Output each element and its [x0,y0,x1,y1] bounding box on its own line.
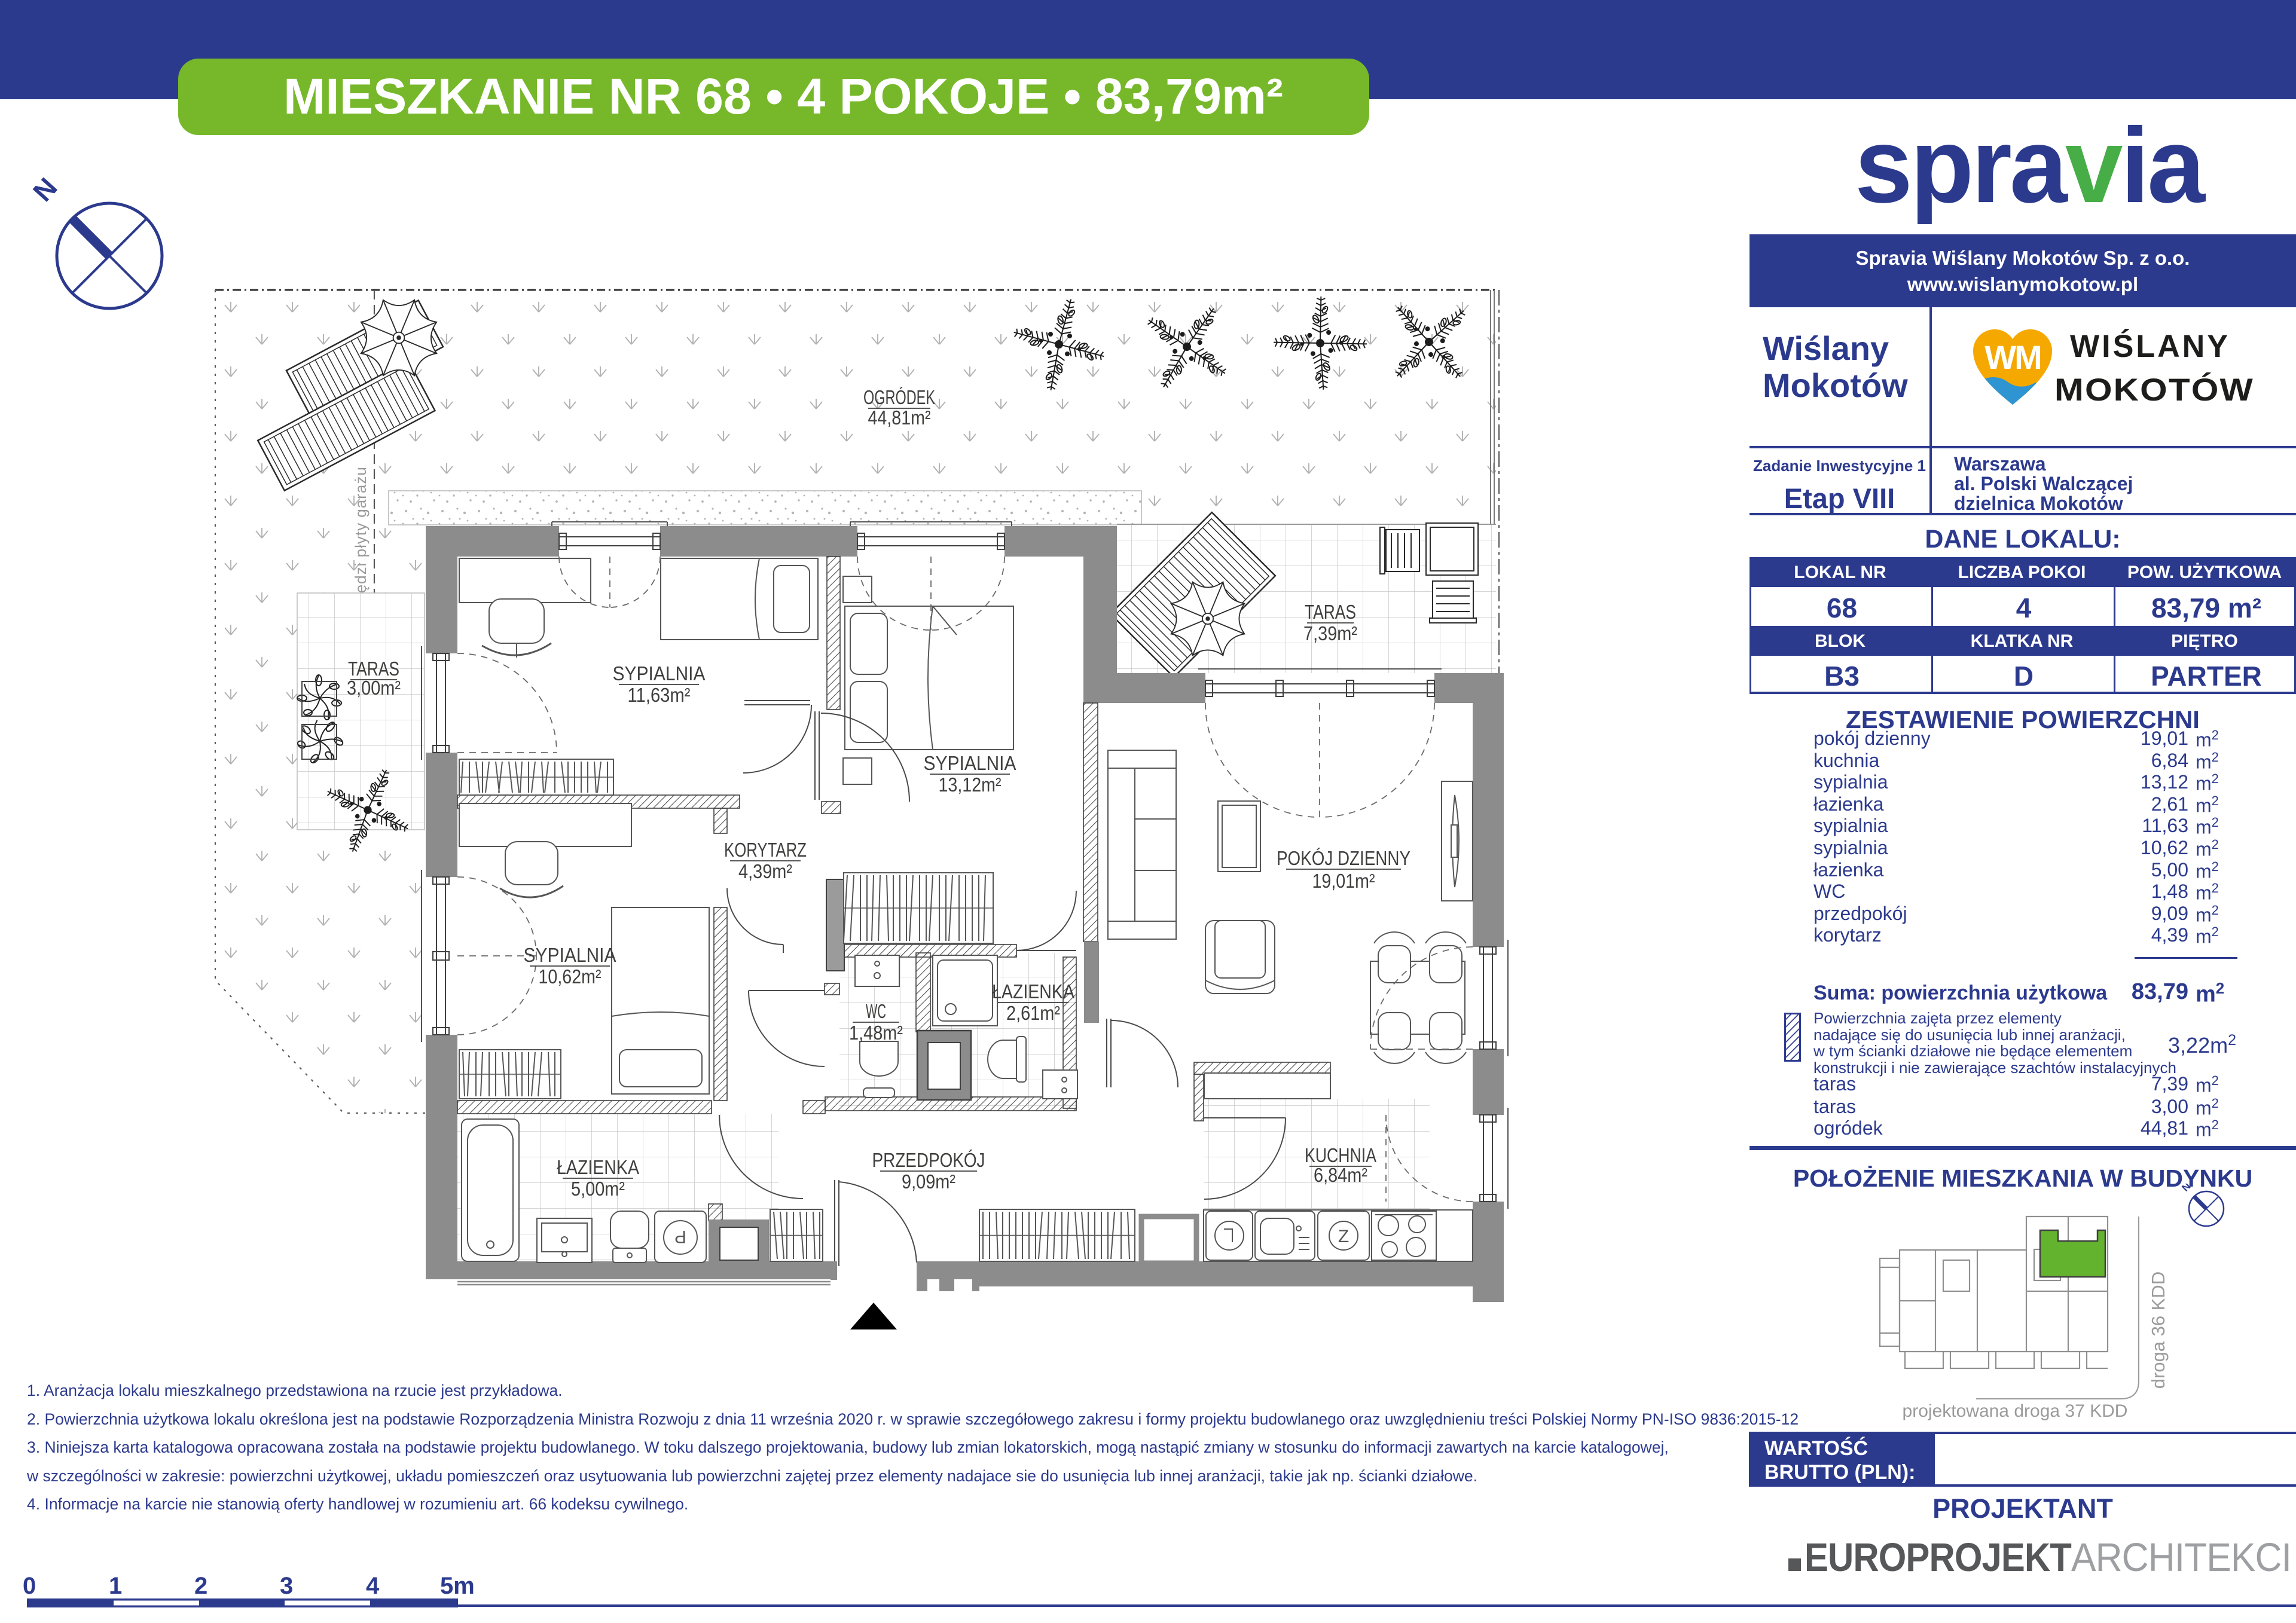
svg-text:KORYTARZ: KORYTARZ [724,839,807,861]
svg-text:TARAS: TARAS [1305,601,1356,623]
svg-text:7,39m²: 7,39m² [1303,622,1357,644]
svg-text:N: N [27,172,63,207]
svg-text:5m: 5m [440,1573,475,1599]
svg-text:OGRÓDEK: OGRÓDEK [863,386,935,408]
svg-text:EUROPROJEKT: EUROPROJEKT [1805,1535,2072,1580]
svg-text:6,84m²: 6,84m² [1314,1164,1367,1186]
svg-text:5,00m²: 5,00m² [571,1178,625,1200]
svg-text:9,09m²: 9,09m² [902,1170,955,1193]
svg-text:spravia: spravia [1855,120,2206,225]
svg-text:2: 2 [194,1573,207,1599]
svg-text:WM: WM [1984,338,2041,376]
svg-text:ŁAZIENKA: ŁAZIENKA [557,1156,639,1178]
svg-text:Z: Z [1338,1227,1349,1246]
svg-text:19,01m²: 19,01m² [1312,870,1375,892]
svg-text:4,39m²: 4,39m² [738,860,792,882]
svg-text:WIŚLANY: WIŚLANY [2070,328,2230,364]
svg-text:1: 1 [109,1573,122,1599]
svg-text:13,12m²: 13,12m² [939,774,1002,796]
svg-text:44,81m²: 44,81m² [868,406,931,429]
svg-text:N: N [2179,1184,2193,1194]
svg-text:KUCHNIA: KUCHNIA [1305,1144,1376,1166]
svg-text:P: P [674,1227,686,1246]
svg-text:2,61m²: 2,61m² [1006,1002,1060,1024]
svg-text:PRZEDPOKÓJ: PRZEDPOKÓJ [872,1149,985,1171]
svg-text:droga 36 KDD: droga 36 KDD [2148,1271,2169,1389]
svg-text:3,00m²: 3,00m² [347,677,401,699]
svg-text:SYPIALNIA: SYPIALNIA [924,752,1016,774]
svg-text:3: 3 [280,1573,293,1599]
svg-text:ARCHITEKCI: ARCHITEKCI [2071,1535,2291,1580]
svg-text:1,48m²: 1,48m² [849,1022,903,1044]
svg-text:MOKOTÓW: MOKOTÓW [2054,372,2254,408]
svg-text:10,62m²: 10,62m² [539,965,602,988]
svg-text:projektowana droga 37 KDD: projektowana droga 37 KDD [1903,1401,2128,1421]
svg-text:MIESZKANIE NR 68 • 4 POKOJE •: MIESZKANIE NR 68 • 4 POKOJE • 83,79m² [283,68,1283,124]
svg-text:WC: WC [866,1000,886,1022]
svg-text:POKÓJ DZIENNY: POKÓJ DZIENNY [1277,847,1410,869]
svg-text:ŁAZIENKA: ŁAZIENKA [992,980,1074,1002]
svg-text:4: 4 [366,1573,380,1599]
svg-text:SYPIALNIA: SYPIALNIA [524,944,616,966]
svg-text:SYPIALNIA: SYPIALNIA [613,662,706,684]
svg-text:11,63m²: 11,63m² [628,684,691,706]
svg-text:0: 0 [23,1573,36,1599]
